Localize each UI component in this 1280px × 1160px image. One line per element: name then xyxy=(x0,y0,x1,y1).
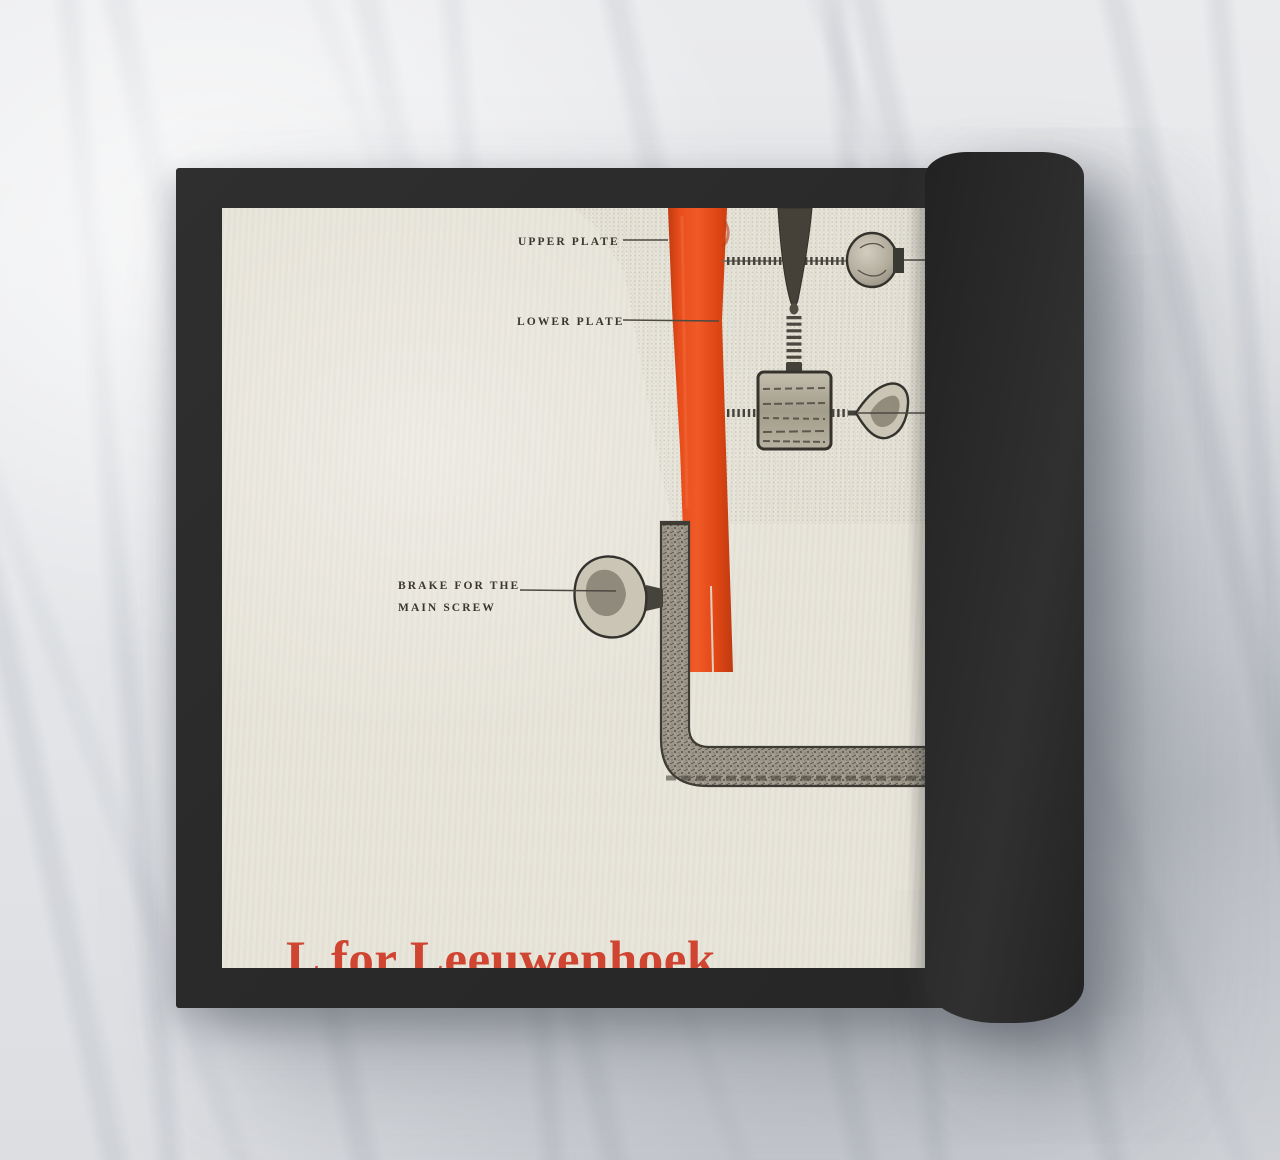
screw-nut xyxy=(893,248,904,273)
book-cover: UPPER PLATE LOWER PLATE BRAKE FOR THE MA… xyxy=(176,168,1040,1008)
lower-plate-label: LOWER PLATE xyxy=(517,316,625,328)
brake-label-line1: BRAKE FOR THE xyxy=(398,580,520,592)
brake-leader-line xyxy=(520,590,616,591)
brake-knob xyxy=(575,556,663,637)
book-page: UPPER PLATE LOWER PLATE BRAKE FOR THE MA… xyxy=(222,208,930,968)
microscope-diagram: UPPER PLATE LOWER PLATE BRAKE FOR THE MA… xyxy=(222,208,930,968)
lower-plate-leader-line xyxy=(623,320,719,321)
handle-tip xyxy=(790,304,799,315)
marble-table-background: UPPER PLATE LOWER PLATE BRAKE FOR THE MA… xyxy=(0,0,1280,1160)
curled-page-roll xyxy=(925,152,1084,1023)
specimen-block xyxy=(758,362,831,449)
page-title: L for Leeuwenhoek xyxy=(286,931,716,968)
ball-knob xyxy=(847,233,897,287)
brake-label-line2: MAIN SCREW xyxy=(398,602,496,614)
upper-plate-label: UPPER PLATE xyxy=(518,236,620,248)
